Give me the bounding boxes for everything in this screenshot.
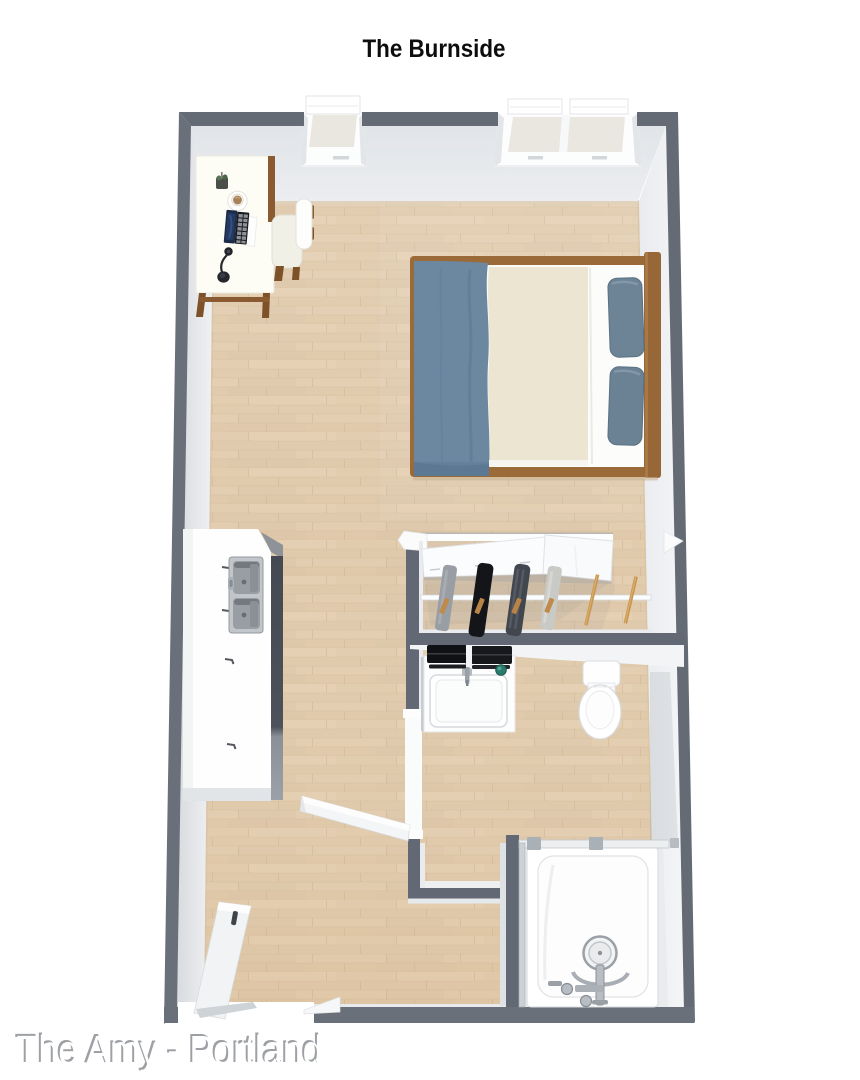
svg-text:The Burnside: The Burnside — [363, 35, 506, 63]
svg-text:The Amy - Portland: The Amy - Portland — [17, 1027, 323, 1073]
